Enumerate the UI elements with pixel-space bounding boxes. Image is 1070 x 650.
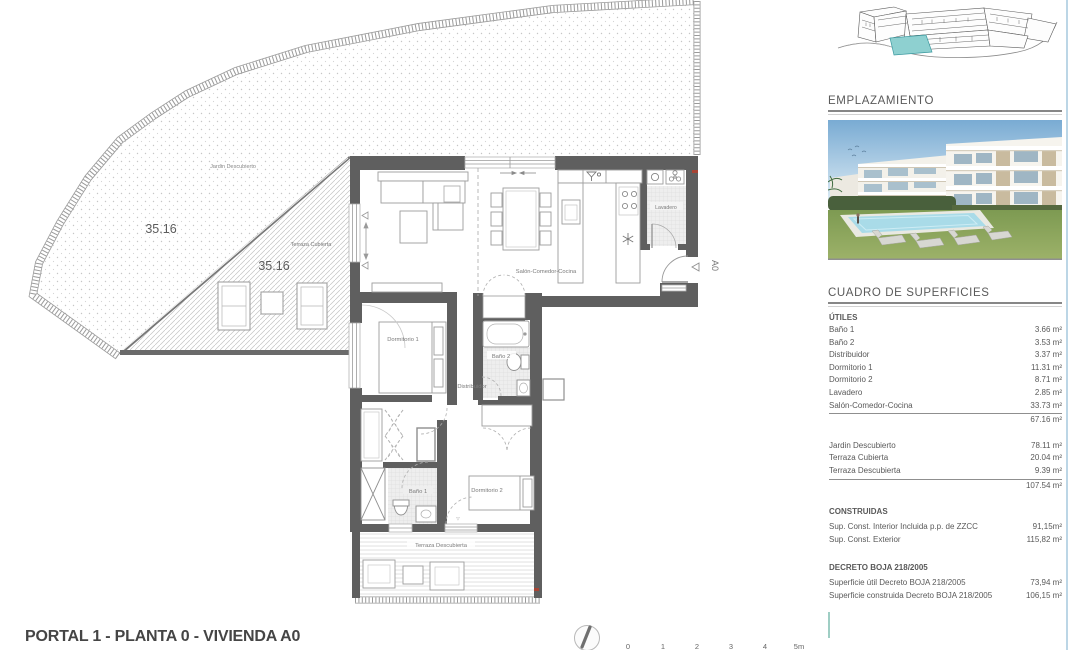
bathtub [483, 321, 529, 347]
table-row: Superficie útil Decreto BOJA 218/2005 73… [829, 577, 1062, 590]
building-key-sketch [830, 2, 1062, 62]
table-row: Salón-Comedor-Cocina 33.73 m² [829, 400, 1062, 413]
distribuidor-label: Distribuidor [457, 384, 486, 390]
heading-rule [828, 110, 1062, 115]
red-mark [692, 170, 698, 173]
exterior-subtotal: 107.54 m² [829, 480, 1062, 493]
teal-mark [828, 612, 830, 638]
utiles-subtotal: 67.16 m² [829, 414, 1062, 427]
highlighted-unit [890, 35, 932, 55]
table-row: Terraza Descubierta 9.39 m² [829, 465, 1062, 478]
table-row: Superficie construida Decreto BOJA 218/2… [829, 590, 1062, 603]
table-row: Baño 1 3.66 m² [829, 324, 1062, 337]
svg-text:0: 0 [626, 642, 630, 650]
bano1-label: Baño 1 [409, 489, 427, 495]
sideboard [372, 283, 442, 292]
terraza-descubierta-label: Terraza Descubierta [415, 543, 468, 549]
salon-label: Salón-Comedor-Cocina [516, 269, 577, 275]
table-row: Jardin Descubierto 78.11 m² [829, 440, 1062, 453]
emplazamiento-heading: EMPLAZAMIENTO [828, 95, 934, 107]
washbasin [416, 506, 436, 522]
plan-sheet: A0 [0, 0, 1070, 650]
salon-closet-niche [483, 296, 525, 318]
table-row: Dormitorio 2 8.71 m² [829, 374, 1062, 387]
terrace-armchair [218, 282, 250, 330]
entrance-tag: A0 [692, 260, 720, 271]
svg-text:3: 3 [729, 642, 733, 650]
svg-text:1: 1 [661, 642, 665, 650]
washbasin [517, 380, 530, 396]
bano2-label: Baño 2 [492, 354, 510, 360]
bed-double [379, 322, 446, 393]
terrace-armchair [297, 283, 327, 329]
table-row: Lavadero 2.85 m² [829, 387, 1062, 400]
entrance-tag-label: A0 [710, 260, 720, 271]
page-title: PORTAL 1 - PLANTA 0 - VIVIENDA A0 [25, 628, 300, 646]
table-row: Terraza Cubierta 20.04 m² [829, 452, 1062, 465]
north-arrow-icon [575, 626, 600, 650]
door-mark: ▽ [456, 516, 460, 521]
dining-table [491, 188, 551, 250]
jardin-label: Jardin Descubierto [210, 164, 256, 170]
page-edge-line [1066, 0, 1068, 650]
floor-plan-drawing: A0 [0, 0, 825, 650]
superficies-heading: CUADRO DE SUPERFICIES [828, 287, 989, 299]
dormitorio2-label: Dormitorio 2 [471, 488, 503, 494]
table-row: Baño 2 3.53 m² [829, 337, 1062, 350]
location-photo [828, 120, 1062, 260]
surfaces-table: ÚTILES Baño 1 3.66 m² Baño 2 3.53 m² Dis… [829, 311, 1062, 603]
shower [361, 468, 385, 520]
table-row: Sup. Const. Exterior 115,82 m² [829, 534, 1062, 547]
construidas-header: CONSTRUIDAS [829, 505, 1062, 518]
lavadero-label: Lavadero [655, 205, 677, 211]
sidebar: EMPLAZAMIENTO [828, 0, 1064, 650]
table-row: Dormitorio 1 11.31 m² [829, 362, 1062, 375]
table-row: Sup. Const. Interior Incluida p.p. de ZZ… [829, 521, 1062, 534]
scale-bar: 0 1 2 3 4 5m [626, 642, 804, 650]
coffee-table [400, 211, 427, 243]
table-row: Distribuidor 3.37 m² [829, 349, 1062, 362]
terraza-cubierta-label: Terraza Cubierta [291, 242, 333, 248]
utiles-header: ÚTILES [829, 311, 1062, 324]
decreto-header: DECRETO BOJA 218/2005 [829, 561, 1062, 574]
lavadero-floor [647, 186, 686, 246]
jardin-area-label: 35.16 [145, 222, 176, 236]
dormitorio1-label: Dormitorio 1 [387, 337, 419, 343]
red-mark [534, 588, 539, 591]
heading-rule [828, 302, 1062, 307]
hedge [828, 196, 956, 211]
svg-text:5m: 5m [794, 642, 804, 650]
svg-text:4: 4 [763, 642, 767, 650]
terraza-cubierta-area-label: 35.16 [258, 259, 289, 273]
terrace-side-table [261, 292, 283, 314]
shaft-niche [543, 379, 564, 400]
svg-text:2: 2 [695, 642, 699, 650]
